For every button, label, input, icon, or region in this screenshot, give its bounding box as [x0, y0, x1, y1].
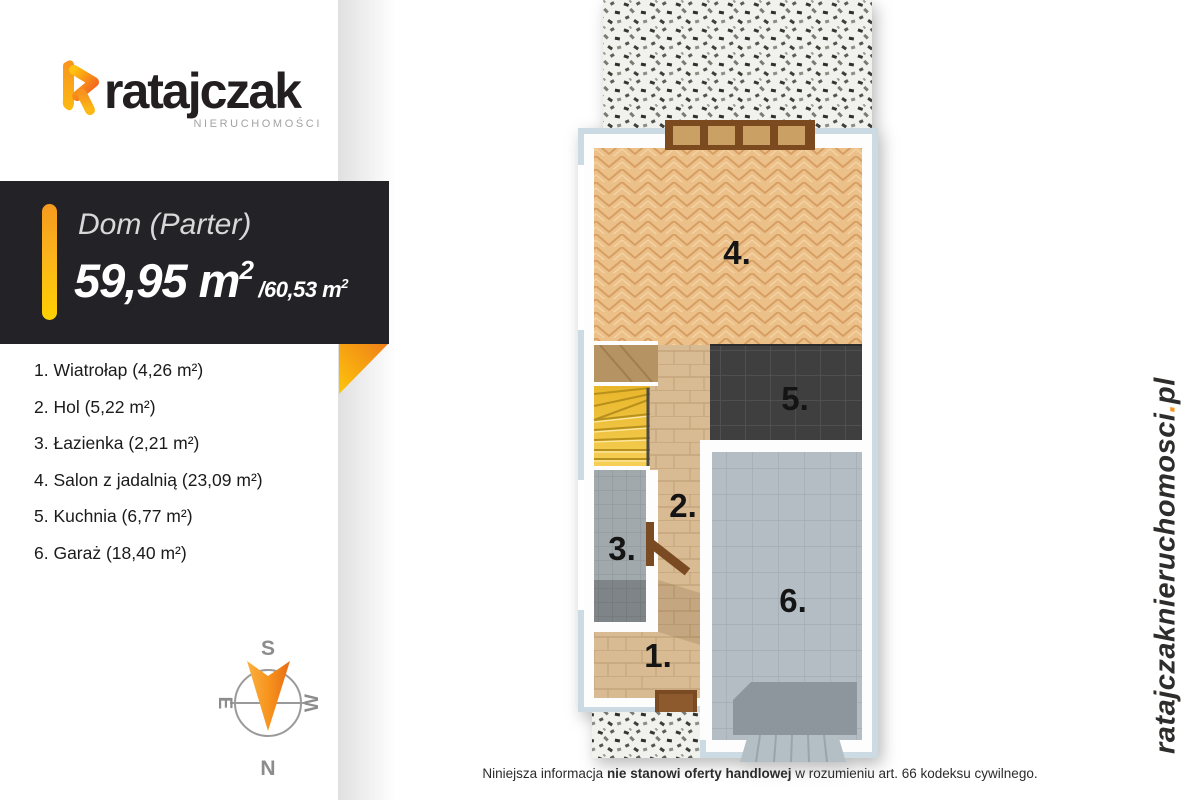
plan-label-kuchnia: 5. [781, 380, 809, 417]
list-item: 3. Łazienka (2,21 m²) [34, 425, 334, 462]
url-main: ratajczaknieruchomosci [1150, 413, 1182, 754]
banner-accent-bar [42, 204, 57, 320]
area-unit: m [187, 254, 240, 307]
bath-dark-zone [594, 580, 650, 622]
url-tld: pl [1150, 377, 1182, 404]
list-item: 5. Kuchnia (6,77 m²) [34, 498, 334, 535]
list-item: 1. Wiatrołap (4,26 m²) [34, 352, 334, 389]
area-value: 59,95 [74, 254, 187, 307]
disclaimer-pre: Niniejsza informacja [482, 766, 607, 781]
plan-label-wiatrolap: 1. [644, 637, 672, 674]
banner-fold [339, 344, 388, 394]
plan-label-garaz: 6. [779, 582, 807, 619]
brand-name: ratajczak [104, 62, 336, 120]
area-secondary: /60,53 m [258, 277, 341, 302]
brand-subtitle: NIERUCHOMOŚCI [104, 118, 322, 130]
terrace-door [665, 120, 815, 150]
wall-bath-wiatrolap [594, 622, 658, 632]
wall-bottom-left [584, 698, 655, 707]
poster: ratajczak NIERUCHOMOŚCI Dom (Parter) 59,… [0, 0, 1200, 800]
compass-rose: S N E W [203, 628, 333, 780]
wall-hol-garage [700, 440, 712, 740]
entry-gravel [592, 712, 700, 758]
list-item: 4. Salon z jadalnią (23,09 m²) [34, 462, 334, 499]
plan-label-hol: 2. [669, 487, 697, 524]
left-column-shadow [338, 0, 396, 800]
wall-kitchen-garage [700, 440, 862, 452]
area-secondary-sup: 2 [341, 276, 348, 291]
floor-plan: 4. 5. 2. 3. 1. 6. [570, 0, 890, 800]
disclaimer-bold: nie stanowi oferty handlowej [607, 766, 792, 781]
title-banner: Dom (Parter) 59,95 m2 /60,53 m2 [0, 181, 389, 344]
compass-west: W [302, 694, 323, 712]
terrace-gravel [603, 0, 872, 130]
window-left-bath [578, 480, 584, 610]
garage-door-recess [733, 682, 857, 735]
brand-logo: ratajczak NIERUCHOMOŚCI [60, 54, 340, 164]
legal-disclaimer: Niniejsza informacja nie stanowi oferty … [440, 766, 1080, 781]
compass-south: S [261, 637, 275, 660]
url-dot: . [1150, 404, 1182, 413]
floor-area: 59,95 m2 /60,53 m2 [74, 253, 348, 308]
list-item: 2. Hol (5,22 m²) [34, 389, 334, 426]
plan-label-salon: 4. [723, 234, 751, 271]
compass-east: E [214, 697, 235, 710]
area-sup: 2 [239, 255, 253, 285]
list-item: 6. Garaż (18,40 m²) [34, 535, 334, 572]
stairs [594, 386, 650, 470]
floor-title: Dom (Parter) [78, 208, 251, 242]
brand-r-icon [60, 56, 100, 120]
compass-north: N [260, 757, 275, 780]
website-url: ratajczaknieruchomosci.pl [1144, 388, 1188, 754]
plan-label-lazienka: 3. [608, 530, 636, 567]
room-list: 1. Wiatrołap (4,26 m²) 2. Hol (5,22 m²) … [34, 352, 334, 571]
disclaimer-post: w rozumieniu art. 66 kodeksu cywilnego. [791, 766, 1037, 781]
compass-needle [247, 661, 290, 731]
window-left-salon [578, 165, 584, 330]
